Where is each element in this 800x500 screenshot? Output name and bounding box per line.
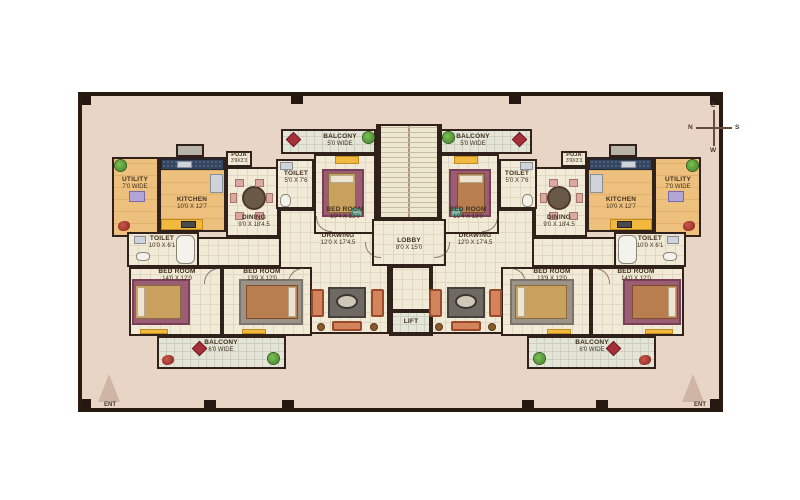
refrigerator	[590, 174, 603, 193]
room-label-bedroom-low-outer-right: BED ROOM14'0 X 12'0	[617, 268, 654, 283]
compass-east: E	[711, 102, 715, 109]
window-sill	[242, 329, 266, 334]
center-table	[336, 294, 358, 309]
wash-basin	[280, 162, 293, 170]
bathtub	[618, 235, 637, 264]
window-sill	[140, 329, 168, 334]
column-marker	[710, 399, 719, 408]
room-label-toilet-top-left: TOILET5'0 X 7'6	[284, 170, 308, 185]
room-label-kitchen-right: KITCHEN10'0 X 12'7	[606, 196, 636, 211]
room-label-kitchen-left: KITCHEN10'0 X 12'7	[177, 196, 207, 211]
refrigerator	[210, 174, 223, 193]
entrance-label-right: ENT	[694, 402, 706, 408]
dining-chair	[230, 193, 237, 203]
column-marker	[522, 400, 534, 408]
kitchen-chimney-right	[609, 144, 637, 157]
side-table	[488, 323, 496, 331]
side-table	[370, 323, 378, 331]
room-label-drawing-right: DRAWING12'0 X 17'4.5	[458, 232, 493, 247]
room-label-lobby: LOBBY8'0 X 15'0	[396, 237, 422, 252]
dining-chair	[569, 179, 578, 187]
room-label-dining-right: DINING9'0 X 18'4.5	[543, 214, 574, 229]
room-label-utility-right: UTILITY7'0 WIDE	[665, 176, 691, 191]
room-label-toilet-low-right: TOILET10'0 X 6'1	[637, 235, 663, 250]
compass-north: N	[688, 124, 693, 131]
side-table	[435, 323, 443, 331]
wash-basin	[520, 162, 533, 170]
sofa	[489, 289, 502, 317]
room-label-puja-right: PUJA3'9X3'3	[566, 152, 582, 164]
red-plant	[683, 221, 695, 231]
stove	[617, 221, 632, 228]
room-label-bedroom-low-inner-left: BED ROOM13'9 X 12'0	[243, 268, 280, 283]
bed-pillow	[459, 175, 483, 183]
room-label-dining-left: DINING9'0 X 18'4.5	[238, 214, 269, 229]
stove	[181, 221, 196, 228]
wardrobe	[335, 156, 359, 164]
dining-chair	[540, 193, 547, 203]
toilet-wc	[280, 194, 291, 207]
room-label-puja-left: PUJA3'9X3'3	[231, 152, 247, 164]
room-label-bedroom-top-right: BED ROOM10'4 X 13'0	[449, 206, 486, 221]
compass-west: W	[710, 147, 716, 154]
column-marker	[204, 400, 216, 408]
dining-chair	[235, 179, 244, 187]
bed-pillow	[668, 287, 676, 317]
core-corridor	[389, 266, 433, 311]
room-label-balcony-top-left: BALCONY5'0 WIDE	[323, 133, 357, 148]
sofa	[451, 321, 481, 331]
bed-pillow	[137, 287, 145, 317]
side-table	[317, 323, 325, 331]
washing-machine	[668, 191, 684, 202]
toilet-wc	[663, 252, 677, 261]
sofa	[429, 289, 442, 317]
floor-plan: ENT ENT E W N S UTILITY7'0 WIDE KITCHEN1…	[78, 92, 723, 412]
room-label-lift: LIFT	[404, 318, 419, 326]
plant	[534, 353, 545, 364]
room-label-balcony-low-right: BALCONY6'0 WIDE	[575, 339, 609, 354]
sofa	[311, 289, 324, 317]
room-label-bedroom-low-inner-right: BED ROOM13'9 X 12'0	[533, 268, 570, 283]
plant	[687, 160, 698, 171]
dining-table	[242, 186, 266, 210]
room-label-bedroom-top-left: BED ROOM10'4 X 13'0	[326, 206, 363, 221]
room-label-toilet-top-right: TOILET5'0 X 7'6	[505, 170, 529, 185]
kitchen-counter	[161, 159, 224, 170]
column-marker	[82, 399, 91, 408]
bed-pillow	[330, 175, 354, 183]
kitchen-sink	[621, 161, 636, 168]
column-marker	[282, 400, 294, 408]
sofa	[371, 289, 384, 317]
window-sill	[547, 329, 571, 334]
toilet-wc	[136, 252, 150, 261]
wash-basin	[667, 236, 679, 244]
dining-chair	[576, 193, 583, 203]
dining-chair	[266, 193, 273, 203]
washing-machine	[129, 191, 145, 202]
room-label-toilet-low-left: TOILET10'0 X 6'1	[149, 235, 175, 250]
entrance-arrow	[682, 374, 704, 402]
center-table	[455, 294, 477, 309]
column-marker	[291, 96, 303, 104]
entrance-label-left: ENT	[104, 402, 116, 408]
plant	[115, 160, 126, 171]
room-label-drawing-left: DRAWING12'0 X 17'4.5	[321, 232, 356, 247]
bed-pillow	[288, 287, 296, 317]
wash-basin	[134, 236, 146, 244]
plant	[363, 132, 374, 143]
red-plant	[118, 221, 130, 231]
entrance-arrow	[98, 374, 120, 402]
plant	[268, 353, 279, 364]
staircase	[376, 124, 442, 219]
kitchen-sink	[177, 161, 192, 168]
page: { "compass": {"top": "E", "left": "N", "…	[0, 0, 800, 500]
bed-pillow	[517, 287, 525, 317]
dining-chair	[549, 179, 558, 187]
sofa	[332, 321, 362, 331]
column-marker	[596, 400, 608, 408]
compass-rose: E W N S	[688, 102, 740, 154]
red-plant	[162, 355, 174, 365]
column-marker	[82, 96, 91, 105]
dining-table	[547, 186, 571, 210]
dining-chair	[255, 179, 264, 187]
wardrobe	[454, 156, 478, 164]
room-label-balcony-top-right: BALCONY5'0 WIDE	[456, 133, 490, 148]
column-marker	[509, 96, 521, 104]
kitchen-chimney-left	[176, 144, 204, 157]
room-label-utility-left: UTILITY7'0 WIDE	[122, 176, 148, 191]
plant	[443, 132, 454, 143]
compass-south: S	[735, 124, 739, 131]
room-label-bedroom-low-outer-left: BED ROOM14'0 X 12'0	[158, 268, 195, 283]
bathtub	[176, 235, 195, 264]
toilet-wc	[522, 194, 533, 207]
window-sill	[645, 329, 673, 334]
compass-axis	[696, 127, 732, 129]
red-plant	[639, 355, 651, 365]
room-label-balcony-low-left: BALCONY6'0 WIDE	[204, 339, 238, 354]
